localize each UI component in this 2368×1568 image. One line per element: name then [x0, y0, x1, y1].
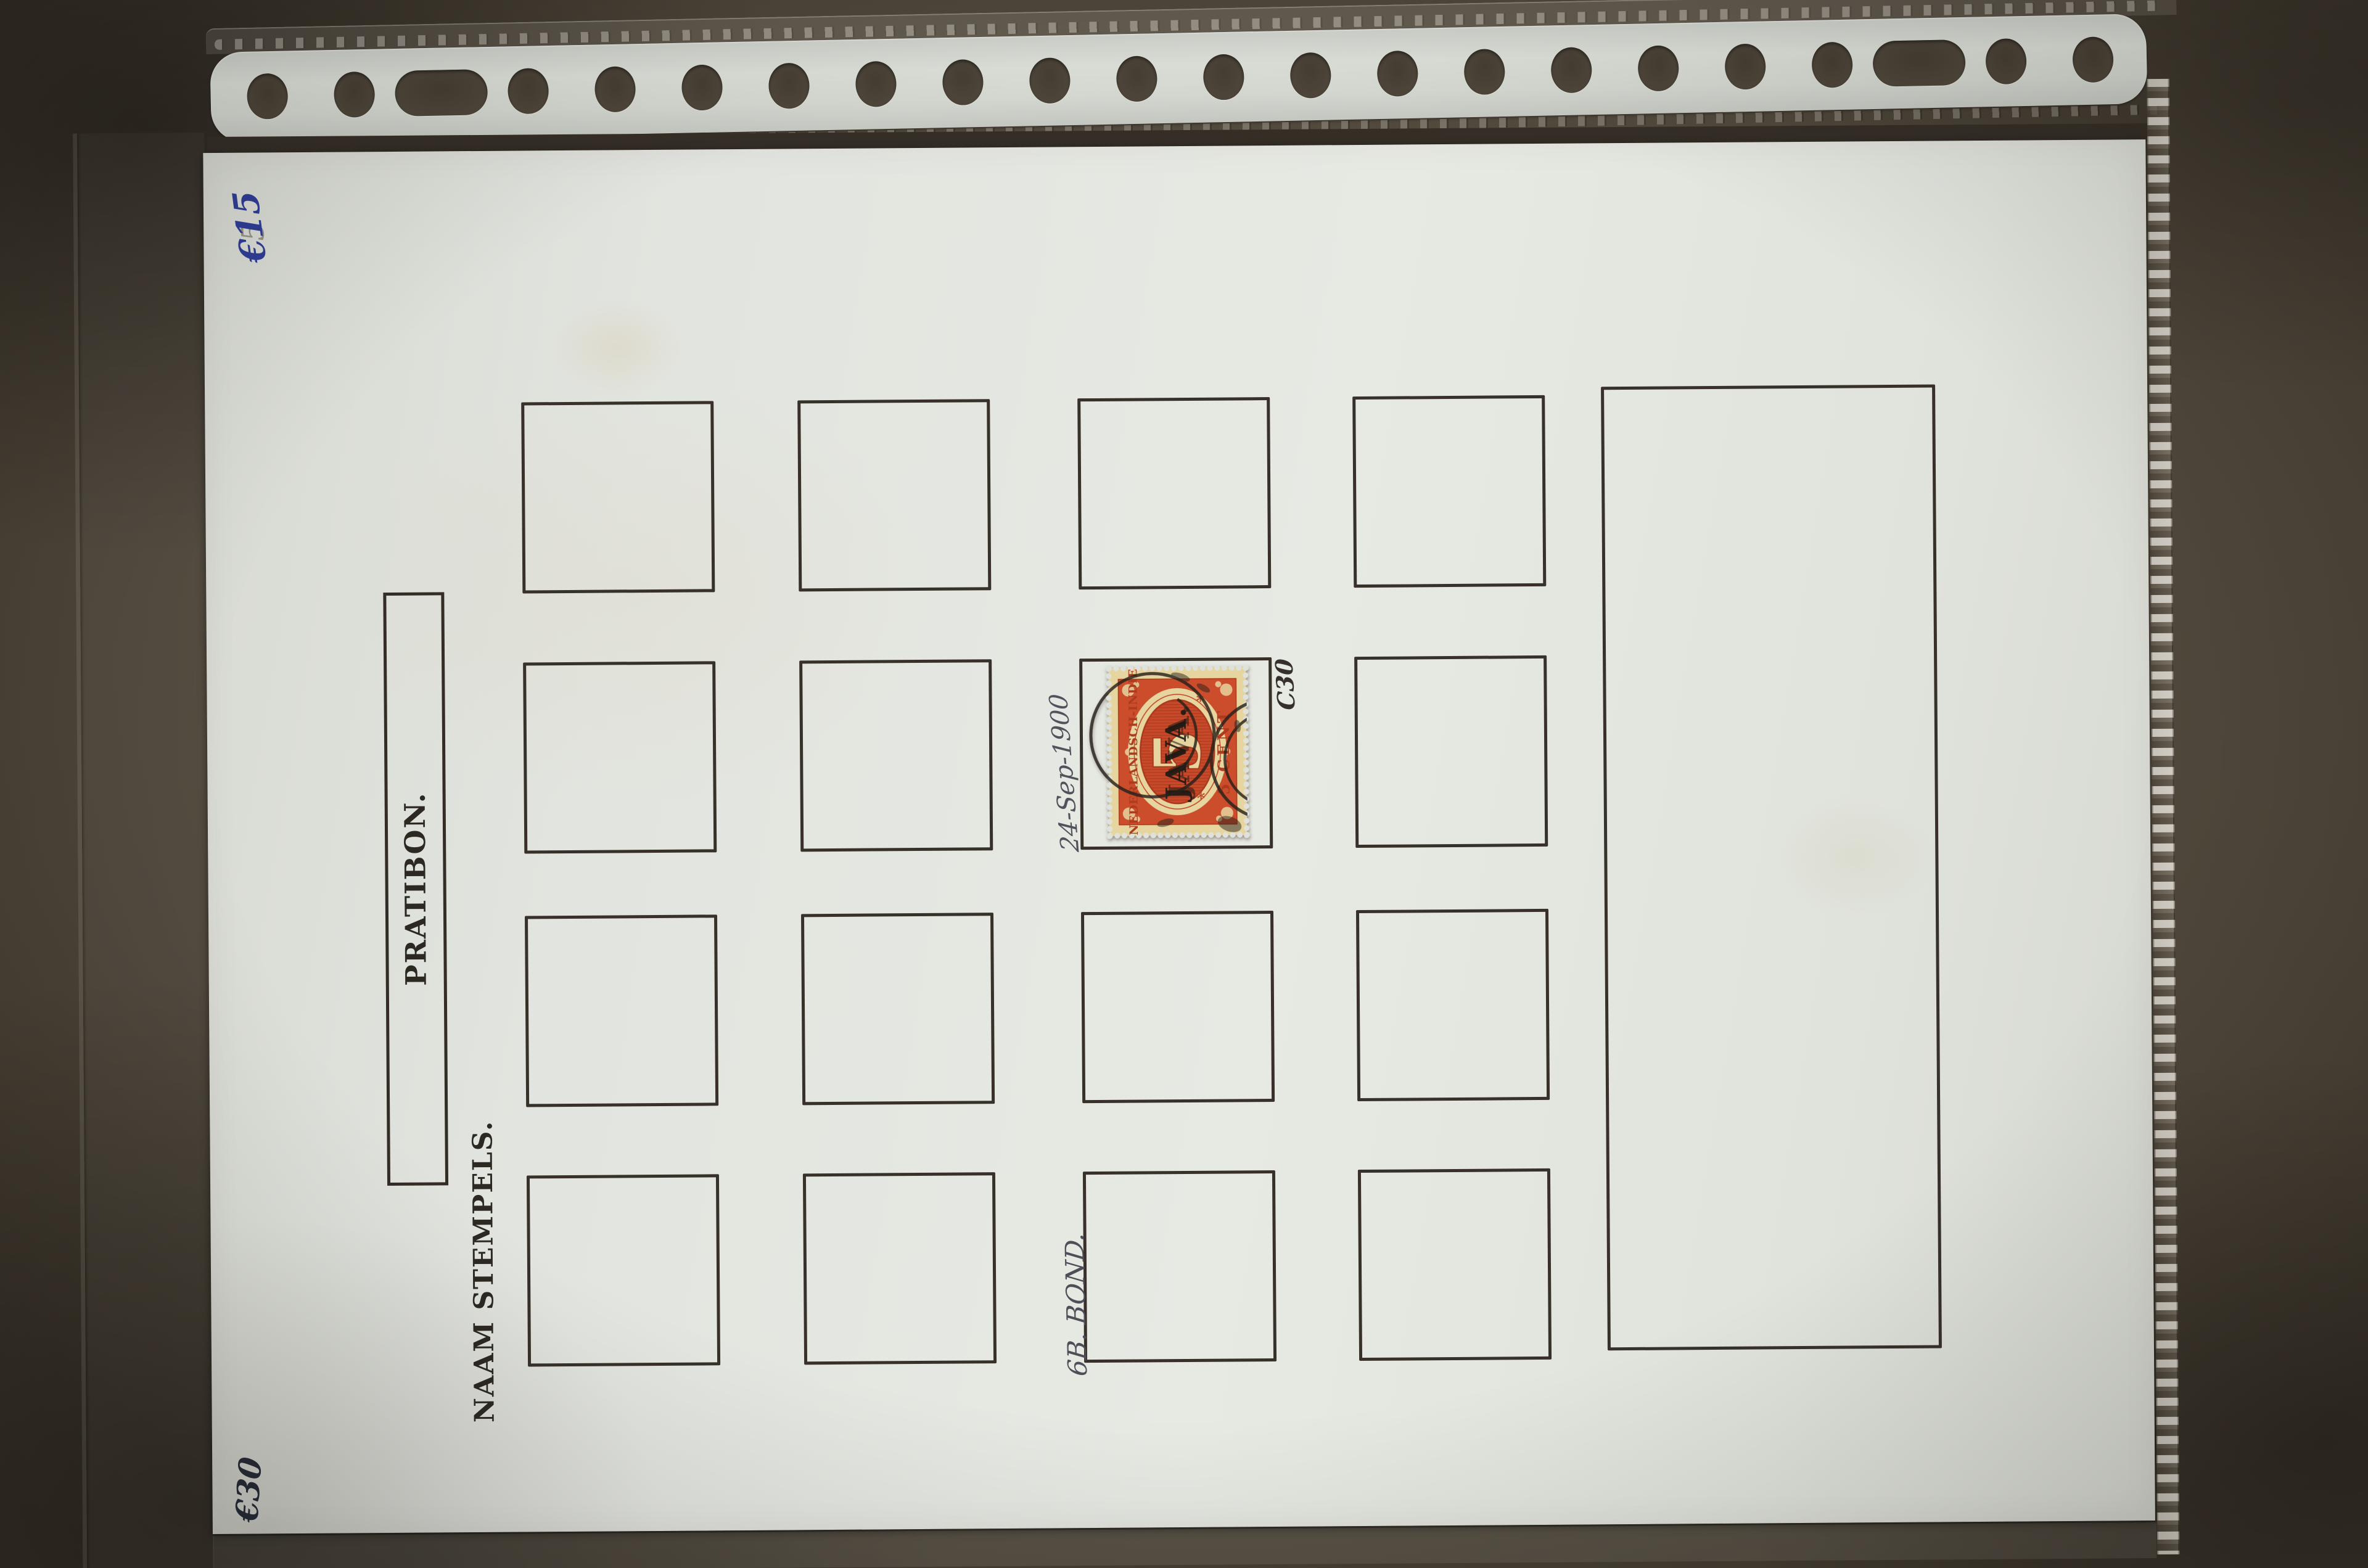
punch-hole [247, 73, 288, 120]
punch-hole [942, 59, 984, 105]
punch-slot [1872, 39, 1965, 87]
punch-slot [395, 69, 488, 117]
punch-hole [1029, 57, 1071, 104]
page-subtitle: NAAM STEMPELS. [467, 1167, 500, 1376]
stamp-frame-box [1354, 655, 1548, 848]
bond-annotation: 6B. BOND. [1060, 1235, 1091, 1373]
punch-hole [1811, 42, 1852, 88]
punch-hole [768, 63, 810, 109]
stamp-frame-box [1352, 395, 1546, 588]
stamp-star-ornament: * [1197, 790, 1206, 808]
catalog-annotation: C30 [1271, 656, 1299, 713]
stamp-frame-box [803, 1172, 997, 1365]
stamp-frame-box [799, 659, 993, 852]
punch-hole [2072, 36, 2113, 83]
stamp-frame-box [801, 913, 995, 1105]
stamp-frame-box [525, 914, 718, 1107]
stamp-frame-box [1083, 1170, 1276, 1363]
page-title: PRATIBON. [399, 809, 432, 969]
stamp-svg: 5 NEDERLANDSCH-INDIE 5 CENT * * JAVA. JA… [1108, 667, 1248, 837]
large-stamp-frame-box [1601, 384, 1942, 1350]
punch-hole [681, 64, 723, 110]
stamp-overprint: JAVA. [1159, 705, 1193, 802]
page-stain [549, 298, 686, 398]
stamp-frame-box [1081, 911, 1275, 1103]
photograph: PRATIBON. NAAM STEMPELS. 5 €15 €30 24-Se… [0, 0, 2368, 1568]
punch-hole [1116, 55, 1157, 102]
stamp-frame-box [521, 401, 715, 593]
punch-hole [1724, 43, 1766, 89]
stamp-frame-box [1077, 397, 1271, 589]
punch-hole [594, 66, 636, 112]
album-page: PRATIBON. NAAM STEMPELS. 5 €15 €30 24-Se… [203, 139, 2155, 1534]
date-annotation: 24-Sep-1900 [1045, 695, 1085, 850]
stamp-frame-box [527, 1174, 720, 1366]
postage-stamp: 5 NEDERLANDSCH-INDIE 5 CENT * * JAVA. JA… [1108, 667, 1248, 837]
punch-hole [508, 68, 549, 114]
punch-hole [1464, 49, 1505, 95]
stamp-frame-box [1358, 1168, 1552, 1361]
stamp-frame-box [1356, 909, 1550, 1101]
punch-hole [1985, 38, 2026, 84]
stamp-country-text: NEDERLANDSCH-INDIE [1126, 668, 1141, 835]
punch-hole [1551, 47, 1592, 93]
sleeve-left-overlay [78, 133, 214, 1568]
stamp-frame-box [523, 661, 717, 853]
stamp-frame-box [797, 399, 991, 591]
price-annotation-top-left: €15 [224, 174, 275, 279]
punch-hole [334, 72, 375, 118]
punch-hole [855, 61, 897, 107]
price-annotation-bottom-left: €30 [228, 1441, 268, 1538]
sleeve-and-page-group: PRATIBON. NAAM STEMPELS. 5 €15 €30 24-Se… [0, 0, 2368, 1568]
punch-hole [1290, 52, 1331, 99]
punch-hole [1377, 51, 1418, 97]
punch-hole [1637, 45, 1679, 91]
punch-hole [1203, 54, 1244, 100]
